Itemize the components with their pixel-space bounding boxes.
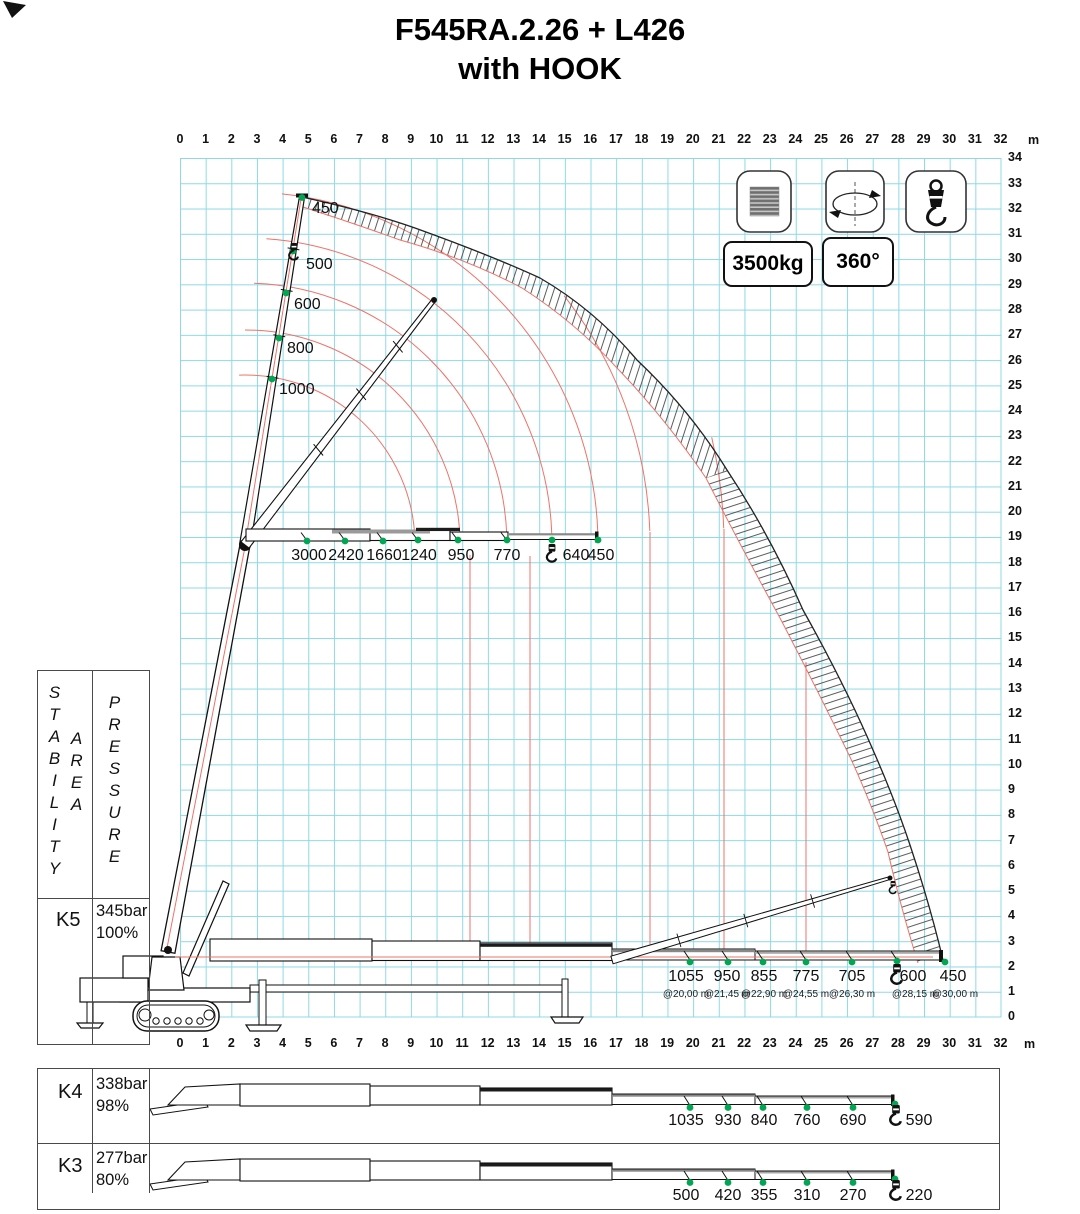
top-axis-tick: 26 — [834, 132, 860, 146]
top-axis-tick: 11 — [449, 132, 475, 146]
table-divider — [92, 671, 93, 1044]
crane-load-chart-page: F545RA.2.26 + L426 with HOOK 3500kg 360°… — [0, 0, 1080, 1214]
right-axis-tick: 30 — [1008, 246, 1022, 271]
table-divider — [92, 1069, 93, 1193]
right-axis-tick: 22 — [1008, 449, 1022, 474]
area-header: AREA — [68, 729, 85, 817]
load-label-mast: 450 — [312, 200, 339, 218]
top-axis-tick: 22 — [731, 132, 757, 146]
top-axis-tick: 17 — [603, 132, 629, 146]
right-axis-tick: 26 — [1008, 348, 1022, 373]
top-axis-tick: 16 — [577, 132, 603, 146]
bottom-axis-tick: 7 — [347, 1036, 373, 1050]
top-axis-tick: 24 — [783, 132, 809, 146]
table-divider — [38, 1143, 999, 1144]
top-axis-tick: 4 — [270, 132, 296, 146]
top-axis-tick: 21 — [706, 132, 732, 146]
right-axis-tick: 1 — [1008, 979, 1022, 1004]
row-key-k5: K5 — [56, 909, 80, 932]
right-axis-tick: 34 — [1008, 145, 1022, 170]
top-axis-tick: 1 — [193, 132, 219, 146]
right-axis-tick: 4 — [1008, 903, 1022, 928]
bottom-axis-tick: 22 — [731, 1036, 757, 1050]
right-axis-tick: 18 — [1008, 550, 1022, 575]
right-axis-tick: 27 — [1008, 322, 1022, 347]
rotation-badge: 360° — [822, 237, 894, 287]
right-axis-tick: 29 — [1008, 272, 1022, 297]
bottom-axis-tick: 16 — [577, 1036, 603, 1050]
load-label-mast: 500 — [306, 256, 333, 274]
page-title-line1: F545RA.2.26 + L426 — [0, 12, 1080, 48]
bottom-axis-tick: 13 — [501, 1036, 527, 1050]
bottom-axis-tick: 6 — [321, 1036, 347, 1050]
bottom-axis-tick: 4 — [270, 1036, 296, 1050]
load-label-19m: 770 — [494, 547, 521, 565]
top-axis-tick: 8 — [372, 132, 398, 146]
bottom-axis-tick: 8 — [372, 1036, 398, 1050]
bottom-axis-tick: 14 — [526, 1036, 552, 1050]
bottom-axis-tick: 18 — [629, 1036, 655, 1050]
right-axis-tick: 0 — [1008, 1004, 1022, 1029]
page-title-line2: with HOOK — [0, 51, 1080, 87]
right-axis-tick: 10 — [1008, 752, 1022, 777]
row-key-k4: K4 — [58, 1081, 82, 1104]
right-axis: 3433323130292827262524232221201918171615… — [1008, 145, 1022, 1029]
top-axis: 0123456789101112131415161718192021222324… — [167, 132, 1014, 146]
top-axis-tick: 30 — [936, 132, 962, 146]
capacity-badge: 3500kg — [723, 241, 813, 287]
row-percent-k4: 98% — [96, 1097, 129, 1116]
right-axis-tick: 33 — [1008, 171, 1022, 196]
top-axis-tick: 2 — [218, 132, 244, 146]
table-divider — [38, 898, 149, 899]
stability-table: STABILITY AREA PRESSURE K5 345bar 100% — [37, 670, 150, 1045]
top-axis-tick: 10 — [424, 132, 450, 146]
bottom-axis-tick: 32 — [988, 1036, 1014, 1050]
top-axis-tick: 5 — [295, 132, 321, 146]
outreach-label: @20,00 m — [663, 989, 709, 1000]
load-label-k5: 705 — [839, 968, 866, 986]
bottom-axis-tick: 21 — [706, 1036, 732, 1050]
load-label-k5: 855 — [751, 968, 778, 986]
right-axis-tick: 28 — [1008, 297, 1022, 322]
top-axis-tick: 25 — [808, 132, 834, 146]
right-axis-tick: 16 — [1008, 600, 1022, 625]
load-label-mast: 600 — [294, 296, 321, 314]
top-axis-tick: 0 — [167, 132, 193, 146]
pressure-header: PRESSURE — [106, 693, 123, 869]
right-axis-tick: 6 — [1008, 853, 1022, 878]
load-label-k5: 775 — [793, 968, 820, 986]
bottom-axis-tick: 15 — [552, 1036, 578, 1050]
row-pressure-k5: 345bar — [96, 902, 147, 921]
load-label-k5: 600 — [900, 968, 927, 986]
bottom-axis-tick: 11 — [449, 1036, 475, 1050]
outreach-label: @24,55 m — [783, 989, 829, 1000]
bottom-axis-tick: 0 — [167, 1036, 193, 1050]
top-axis-tick: 9 — [398, 132, 424, 146]
load-label-k5: 1055 — [668, 968, 704, 986]
outreach-label: @22,90 m — [741, 989, 787, 1000]
top-axis-tick: 18 — [629, 132, 655, 146]
right-axis-tick: 23 — [1008, 423, 1022, 448]
right-axis-tick: 15 — [1008, 625, 1022, 650]
bottom-axis-tick: 29 — [911, 1036, 937, 1050]
load-label-k5: 950 — [714, 968, 741, 986]
top-axis-tick: 19 — [654, 132, 680, 146]
weight-stack-icon — [737, 171, 791, 232]
bottom-axis-tick: 25 — [808, 1036, 834, 1050]
right-axis-tick: 17 — [1008, 575, 1022, 600]
top-axis-tick: 32 — [988, 132, 1014, 146]
load-label-19m: 2420 — [328, 547, 364, 565]
outreach-label: @26,30 m — [829, 989, 875, 1000]
table-divider — [149, 1069, 150, 1193]
load-diagram — [0, 0, 1080, 1214]
right-axis-tick: 9 — [1008, 777, 1022, 802]
rotation-icon — [826, 171, 884, 232]
right-axis-tick: 7 — [1008, 828, 1022, 853]
hook-icon — [906, 171, 966, 232]
right-axis-tick: 32 — [1008, 196, 1022, 221]
right-axis-tick: 12 — [1008, 701, 1022, 726]
load-label-19m: 450 — [588, 547, 615, 565]
right-axis-tick: 21 — [1008, 474, 1022, 499]
load-label-mast: 800 — [287, 340, 314, 358]
top-axis-tick: 3 — [244, 132, 270, 146]
top-axis-tick: 12 — [475, 132, 501, 146]
bottom-axis-tick: 9 — [398, 1036, 424, 1050]
bottom-axis-tick: 30 — [936, 1036, 962, 1050]
top-axis-tick: 13 — [501, 132, 527, 146]
bottom-axis: 0123456789101112131415161718192021222324… — [167, 1036, 1014, 1050]
bottom-axis-tick: 28 — [885, 1036, 911, 1050]
top-axis-tick: 7 — [347, 132, 373, 146]
bottom-axis-tick: 27 — [859, 1036, 885, 1050]
bottom-axis-tick: 2 — [218, 1036, 244, 1050]
k-rows-table: K4 338bar 98% K3 277bar 80% — [37, 1068, 1000, 1210]
bottom-axis-tick: 20 — [680, 1036, 706, 1050]
bottom-axis-tick: 5 — [295, 1036, 321, 1050]
row-pressure-k3: 277bar — [96, 1149, 147, 1168]
bottom-axis-tick: 3 — [244, 1036, 270, 1050]
right-axis-tick: 3 — [1008, 929, 1022, 954]
top-axis-tick: 6 — [321, 132, 347, 146]
right-axis-tick: 11 — [1008, 727, 1022, 752]
stability-header: STABILITY — [46, 683, 63, 881]
right-axis-tick: 2 — [1008, 954, 1022, 979]
bottom-axis-tick: 19 — [654, 1036, 680, 1050]
bottom-axis-tick: 26 — [834, 1036, 860, 1050]
load-label-19m: 1660 — [366, 547, 402, 565]
bottom-axis-tick: 17 — [603, 1036, 629, 1050]
load-label-19m: 3000 — [291, 547, 327, 565]
top-axis-tick: 29 — [911, 132, 937, 146]
top-axis-tick: 15 — [552, 132, 578, 146]
bottom-axis-tick: 1 — [193, 1036, 219, 1050]
bottom-axis-tick: 24 — [783, 1036, 809, 1050]
top-axis-unit: m — [1028, 133, 1039, 147]
row-percent-k3: 80% — [96, 1171, 129, 1190]
load-label-19m: 1240 — [401, 547, 437, 565]
right-axis-tick: 31 — [1008, 221, 1022, 246]
load-label-k5: 450 — [940, 968, 967, 986]
outreach-label: @30,00 m — [932, 989, 978, 1000]
row-percent-k5: 100% — [96, 924, 138, 943]
right-axis-tick: 14 — [1008, 651, 1022, 676]
top-axis-tick: 20 — [680, 132, 706, 146]
right-axis-tick: 8 — [1008, 802, 1022, 827]
load-label-19m: 640 — [563, 547, 590, 565]
bottom-axis-tick: 12 — [475, 1036, 501, 1050]
load-label-mast: 1000 — [279, 381, 315, 399]
bottom-axis-tick: 31 — [962, 1036, 988, 1050]
right-axis-tick: 5 — [1008, 878, 1022, 903]
right-axis-tick: 19 — [1008, 524, 1022, 549]
top-axis-tick: 23 — [757, 132, 783, 146]
top-axis-tick: 31 — [962, 132, 988, 146]
bottom-axis-tick: 10 — [424, 1036, 450, 1050]
right-axis-tick: 24 — [1008, 398, 1022, 423]
bottom-axis-unit: m — [1024, 1037, 1035, 1051]
row-key-k3: K3 — [58, 1155, 82, 1178]
right-axis-tick: 25 — [1008, 373, 1022, 398]
right-axis-tick: 20 — [1008, 499, 1022, 524]
load-label-19m: 950 — [448, 547, 475, 565]
row-pressure-k4: 338bar — [96, 1075, 147, 1094]
top-axis-tick: 28 — [885, 132, 911, 146]
top-axis-tick: 14 — [526, 132, 552, 146]
bottom-axis-tick: 23 — [757, 1036, 783, 1050]
top-axis-tick: 27 — [859, 132, 885, 146]
right-axis-tick: 13 — [1008, 676, 1022, 701]
